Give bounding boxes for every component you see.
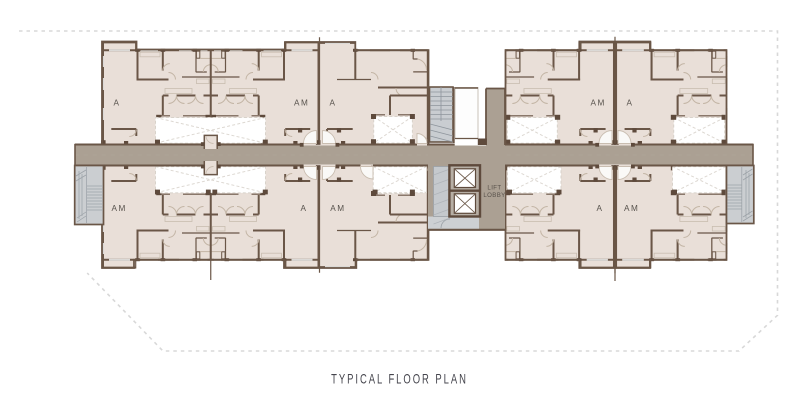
svg-text:A: A xyxy=(597,204,604,213)
svg-text:LOBBY: LOBBY xyxy=(483,192,505,199)
svg-text:AM: AM xyxy=(112,204,127,213)
svg-text:AM: AM xyxy=(591,99,606,108)
svg-text:A: A xyxy=(627,99,634,108)
svg-text:A: A xyxy=(330,99,337,108)
svg-text:AM: AM xyxy=(624,204,639,213)
svg-text:TYPICAL FLOOR PLAN: TYPICAL FLOOR PLAN xyxy=(331,372,468,387)
svg-text:AM: AM xyxy=(294,99,309,108)
svg-text:A: A xyxy=(114,99,121,108)
svg-text:AM: AM xyxy=(330,204,345,213)
svg-text:A: A xyxy=(301,204,308,213)
svg-text:LIFT: LIFT xyxy=(487,185,501,192)
